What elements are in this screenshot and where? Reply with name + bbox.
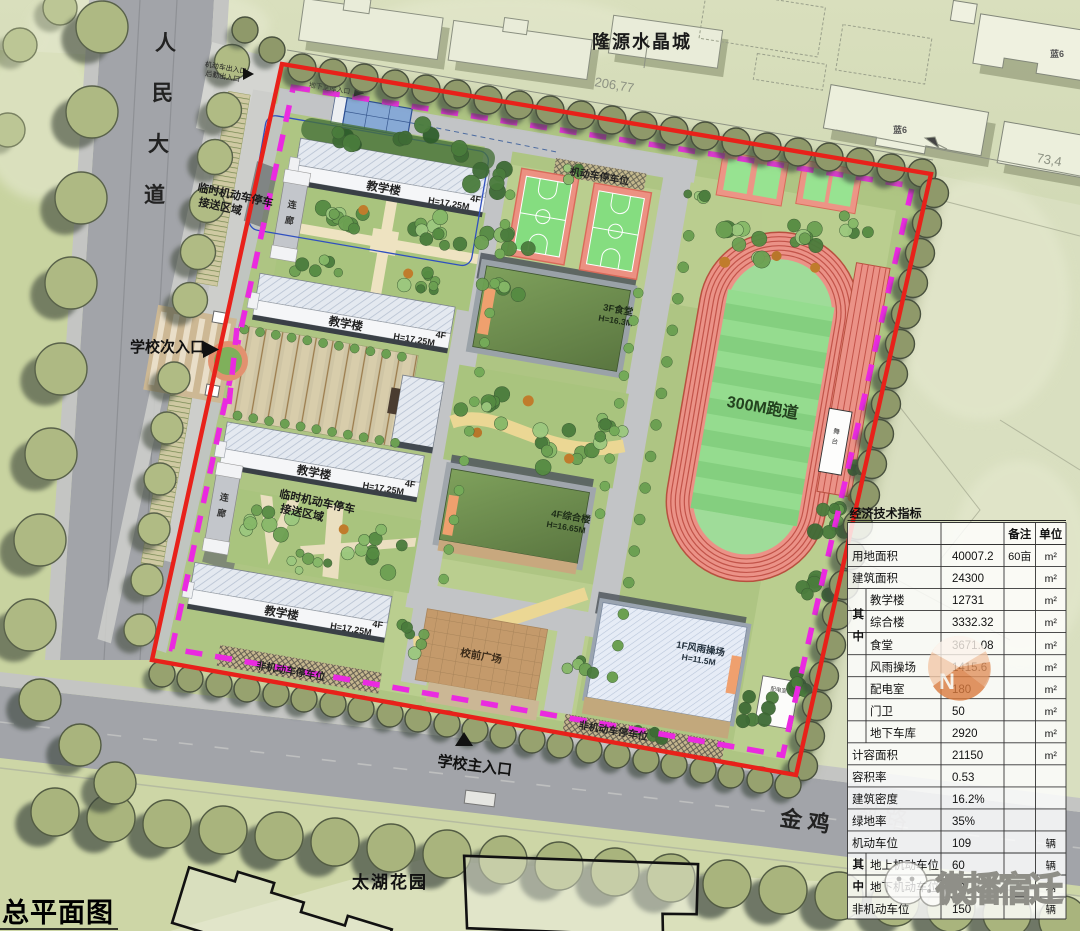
- svg-text:其: 其: [853, 857, 865, 871]
- svg-text:m²: m²: [1045, 640, 1058, 652]
- svg-text:总平面图: 总平面图: [2, 898, 114, 928]
- svg-text:3332.32: 3332.32: [952, 617, 994, 629]
- svg-text:21150: 21150: [952, 750, 983, 762]
- svg-text:太湖花园: 太湖花园: [352, 872, 428, 892]
- svg-text:学校次入口: 学校次入口: [130, 338, 205, 356]
- svg-text:综合楼: 综合楼: [870, 615, 905, 629]
- svg-text:备注: 备注: [1007, 527, 1031, 541]
- svg-text:廊: 廊: [284, 214, 295, 226]
- svg-text:地下车库: 地下车库: [870, 726, 916, 740]
- svg-text:m²: m²: [1045, 662, 1058, 674]
- svg-text:人: 人: [155, 32, 176, 55]
- svg-text:蓝6: 蓝6: [893, 124, 907, 135]
- svg-text:16.2%: 16.2%: [952, 794, 985, 806]
- svg-text:食堂: 食堂: [870, 638, 893, 652]
- svg-text:容积率: 容积率: [852, 770, 887, 784]
- svg-text:N: N: [939, 669, 955, 694]
- svg-text:风雨操场: 风雨操场: [870, 660, 916, 674]
- svg-text:机动车位: 机动车位: [852, 836, 898, 850]
- svg-text:m²: m²: [1045, 728, 1058, 740]
- svg-text:中: 中: [853, 629, 865, 643]
- svg-text:绿地率: 绿地率: [852, 814, 887, 828]
- svg-text:用地面积: 用地面积: [852, 550, 898, 563]
- svg-text:蓝6: 蓝6: [1050, 48, 1064, 59]
- svg-text:m²: m²: [1045, 551, 1058, 563]
- svg-text:m²: m²: [1045, 595, 1058, 607]
- svg-text:单位: 单位: [1039, 527, 1062, 541]
- svg-text:m²: m²: [1045, 617, 1058, 629]
- svg-text:建筑密度: 建筑密度: [852, 792, 898, 806]
- svg-text:109: 109: [952, 838, 971, 850]
- svg-text:m²: m²: [1045, 573, 1058, 585]
- svg-text:廊: 廊: [216, 507, 227, 519]
- svg-text:40007.2: 40007.2: [952, 551, 994, 563]
- svg-text:m²: m²: [1045, 684, 1058, 696]
- svg-text:经济技术指标: 经济技术指标: [850, 506, 922, 521]
- svg-text:2920: 2920: [952, 728, 978, 740]
- svg-text:12731: 12731: [952, 595, 984, 607]
- svg-text:60亩: 60亩: [1008, 549, 1031, 563]
- svg-text:m²: m²: [1045, 706, 1058, 718]
- svg-text:24300: 24300: [952, 573, 984, 585]
- svg-text:隆源水晶城: 隆源水晶城: [592, 31, 692, 52]
- svg-text:中: 中: [853, 879, 865, 893]
- svg-text:计容面积: 计容面积: [852, 748, 898, 762]
- svg-text:其: 其: [853, 607, 865, 621]
- svg-text:配电室: 配电室: [870, 682, 905, 696]
- svg-text:微播宿迁: 微播宿迁: [935, 871, 1063, 909]
- svg-text:辆: 辆: [1046, 837, 1057, 850]
- svg-text:m²: m²: [1045, 750, 1058, 762]
- svg-text:门卫: 门卫: [870, 704, 893, 718]
- svg-text:建筑面积: 建筑面积: [852, 571, 898, 585]
- svg-text:民: 民: [152, 82, 173, 105]
- svg-text:教学楼: 教学楼: [870, 593, 905, 607]
- svg-text:道: 道: [144, 183, 165, 207]
- svg-text:0.53: 0.53: [952, 772, 974, 784]
- svg-text:大: 大: [148, 133, 169, 156]
- svg-text:50: 50: [952, 706, 965, 718]
- svg-text:35%: 35%: [952, 816, 975, 828]
